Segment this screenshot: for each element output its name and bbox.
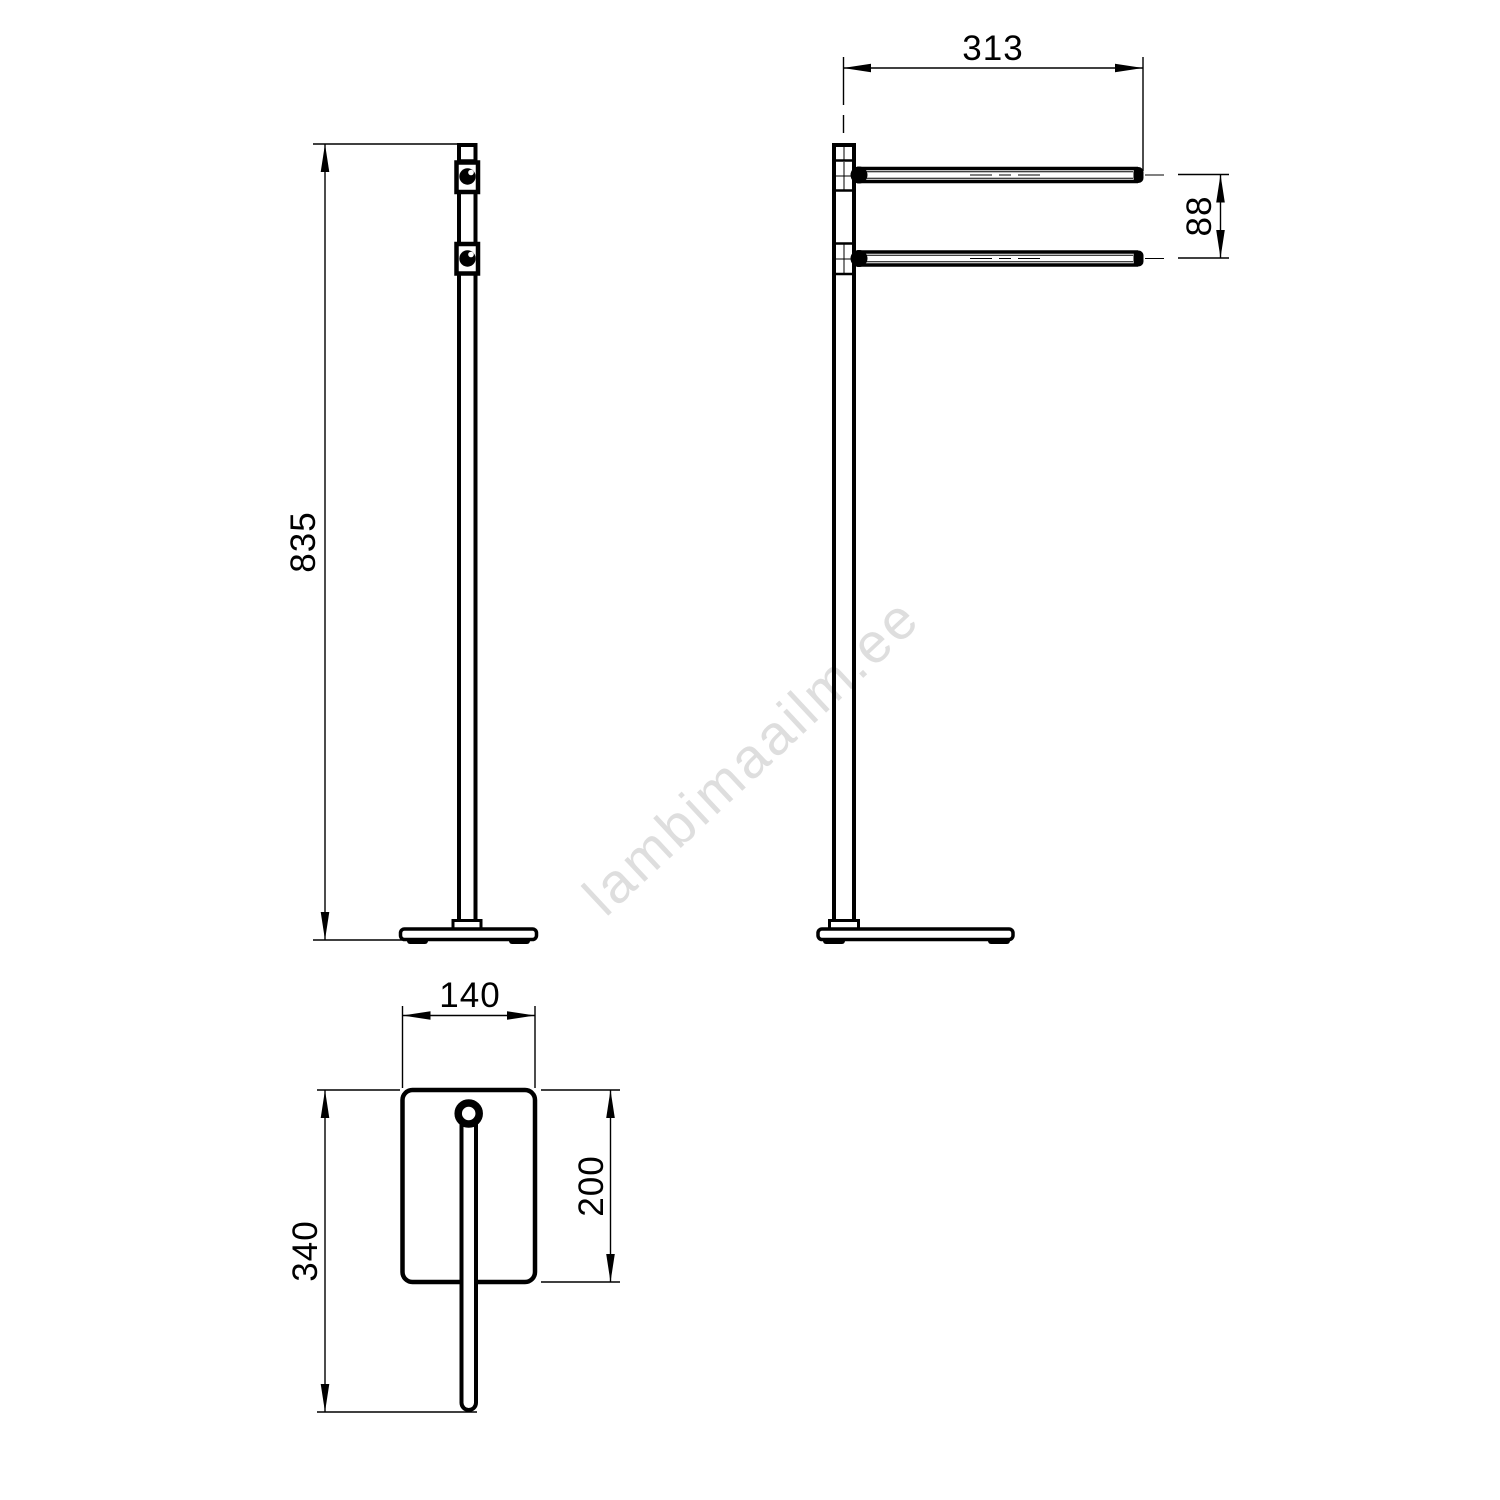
dimension-bar-length-313: 313 xyxy=(843,29,1143,171)
dimension-base-depth-200: 200 xyxy=(541,1090,620,1282)
plan-view: 140 200 340 xyxy=(286,976,620,1412)
towel-bar-plan xyxy=(462,1112,477,1410)
base-plate-front xyxy=(401,929,537,940)
arrowhead-up xyxy=(606,1090,615,1118)
watermark: lambimaailm.ee xyxy=(571,585,931,927)
arrowhead-down xyxy=(321,1384,330,1412)
technical-drawing-towel-stand: lambimaailm.ee 835 xyxy=(0,0,1500,1500)
dimension-label-bar-length: 313 xyxy=(962,29,1023,68)
front-view: 835 xyxy=(284,144,537,944)
dimension-label-base-depth: 200 xyxy=(572,1155,611,1216)
arrowhead-down xyxy=(321,912,330,940)
watermark-text: lambimaailm.ee xyxy=(571,585,931,927)
arrowhead-left xyxy=(403,1011,431,1020)
arrowhead-up xyxy=(321,144,330,172)
arrowhead-down xyxy=(606,1254,615,1282)
bar-end-circle xyxy=(459,250,475,266)
dimension-label-base-width: 140 xyxy=(439,976,500,1015)
arrowhead-up xyxy=(321,1090,330,1118)
bar-ball-joint xyxy=(851,250,868,267)
dimension-base-width-140: 140 xyxy=(403,976,536,1088)
base-plate-side xyxy=(818,929,1013,940)
side-view: 313 xyxy=(818,29,1229,944)
arrowhead-right xyxy=(1115,64,1143,73)
dimension-label-overall-depth: 340 xyxy=(286,1220,325,1281)
bar-ball-joint xyxy=(851,167,868,184)
dimension-height-835: 835 xyxy=(284,144,457,940)
bar-end-circle xyxy=(459,168,475,184)
drawing-canvas: lambimaailm.ee 835 xyxy=(0,0,1500,1500)
bar-end-cap xyxy=(1134,167,1144,183)
bar-hub-lower-front xyxy=(457,244,479,274)
towel-bar-lower xyxy=(851,250,1165,267)
towel-bar-upper xyxy=(851,167,1165,184)
arrowhead-right xyxy=(507,1011,535,1020)
bar-end-highlight xyxy=(468,170,474,176)
bar-end-cap xyxy=(1134,251,1144,267)
post-plan-circle xyxy=(458,1103,479,1124)
dimension-bar-spacing-88: 88 xyxy=(1178,175,1229,259)
arrowhead-left xyxy=(843,64,871,73)
bar-hub-upper-front xyxy=(457,163,479,193)
bar-end-highlight xyxy=(468,252,474,258)
dimension-label-height: 835 xyxy=(284,511,323,572)
dimension-label-bar-spacing: 88 xyxy=(1180,196,1219,237)
